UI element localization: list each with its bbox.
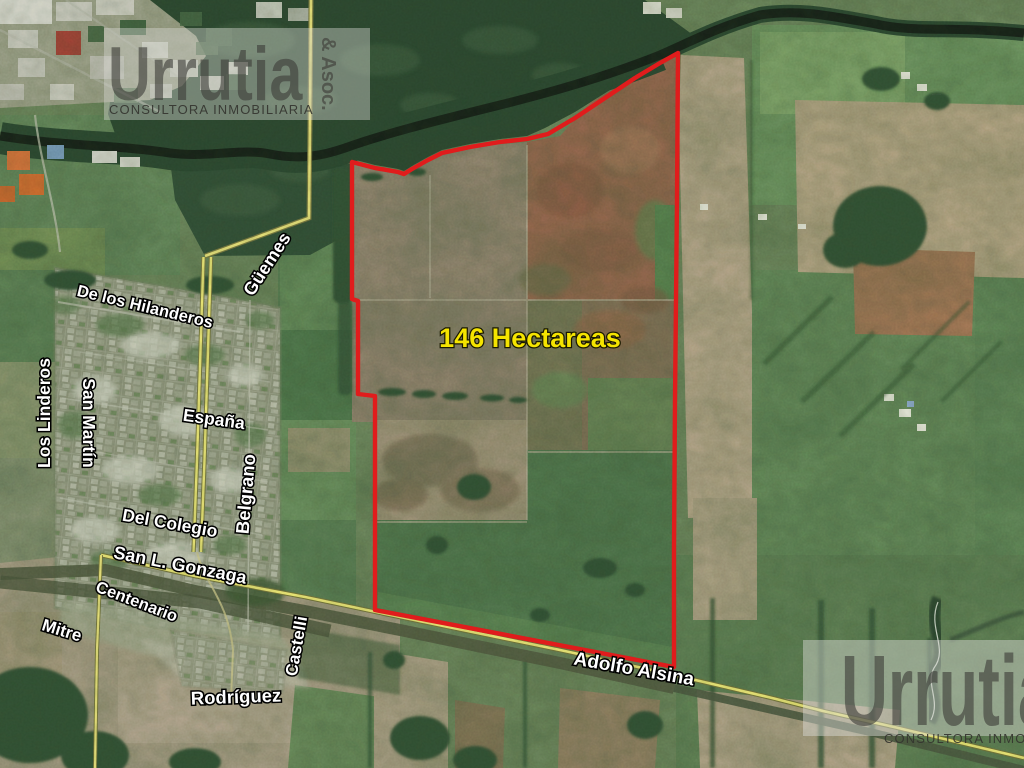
svg-text:Rodríguez: Rodríguez — [190, 684, 281, 708]
svg-text:San Martín: San Martín — [79, 378, 99, 467]
svg-text:CONSULTORA INMOBILIARIA: CONSULTORA INMOBILIARIA — [884, 731, 1024, 746]
svg-text:& Asoc.: & Asoc. — [317, 37, 339, 111]
svg-text:Urrutia: Urrutia — [841, 635, 1024, 746]
svg-text:146 Hectareas: 146 Hectareas — [439, 323, 621, 353]
svg-text:Los Linderos: Los Linderos — [34, 358, 54, 468]
svg-text:CONSULTORA INMOBILIARIA: CONSULTORA INMOBILIARIA — [109, 102, 314, 117]
